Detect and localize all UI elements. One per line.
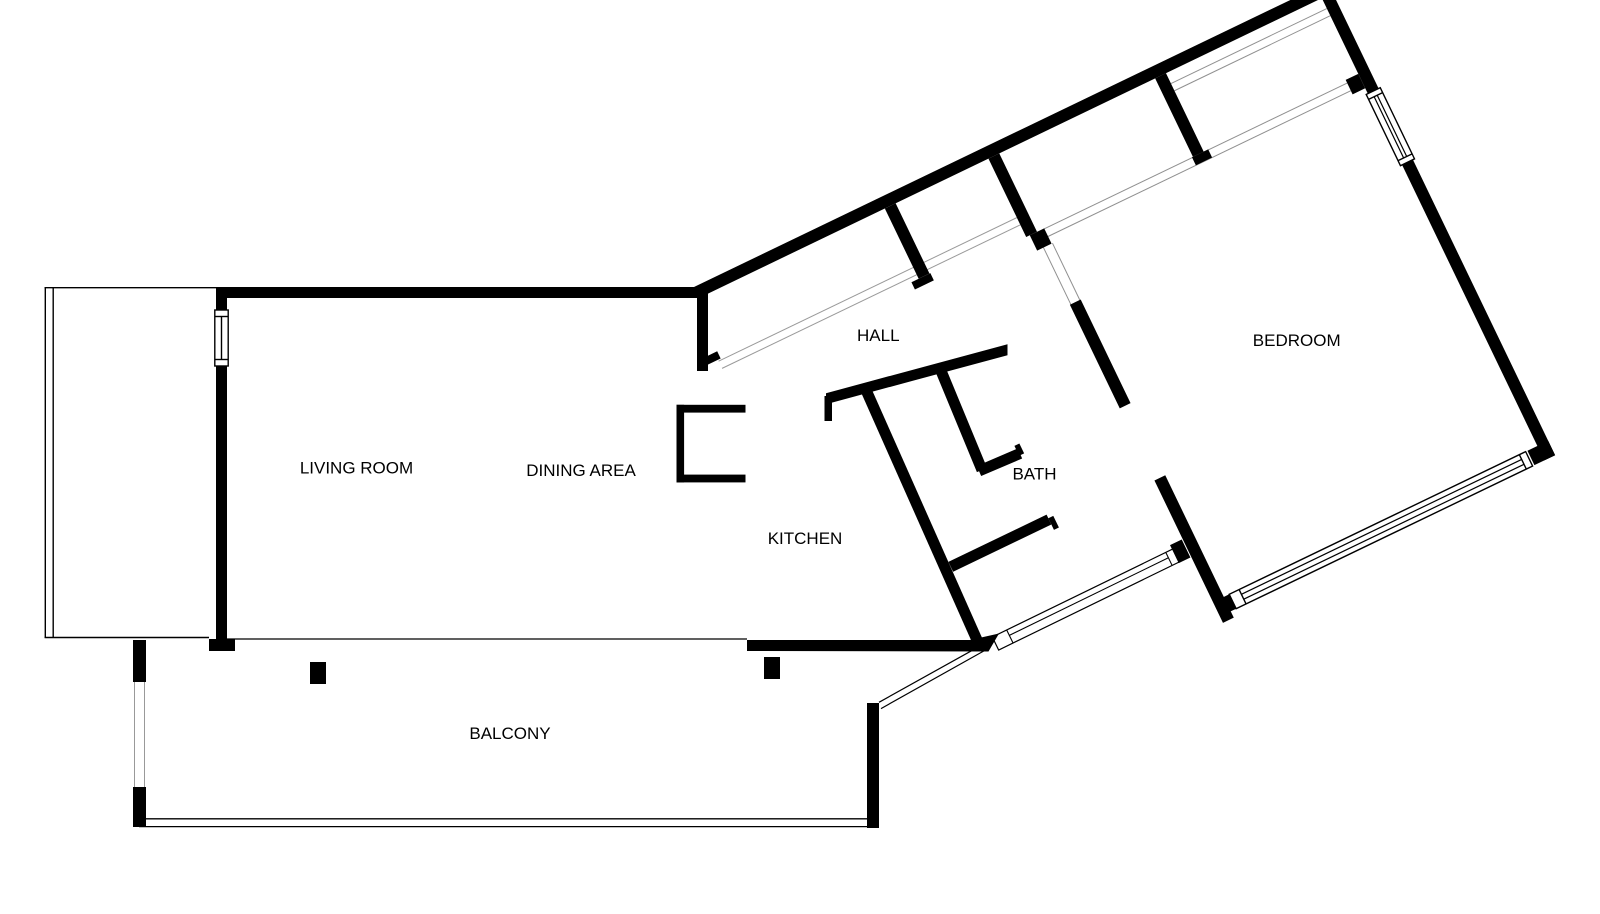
svg-text:LIVING ROOM: LIVING ROOM <box>300 459 413 478</box>
svg-text:BATH: BATH <box>1012 464 1056 483</box>
svg-text:BALCONY: BALCONY <box>469 724 550 743</box>
svg-text:BEDROOM: BEDROOM <box>1253 331 1341 350</box>
svg-text:DINING AREA: DINING AREA <box>526 461 636 480</box>
svg-text:KITCHEN: KITCHEN <box>768 529 843 548</box>
svg-text:HALL: HALL <box>857 326 900 345</box>
